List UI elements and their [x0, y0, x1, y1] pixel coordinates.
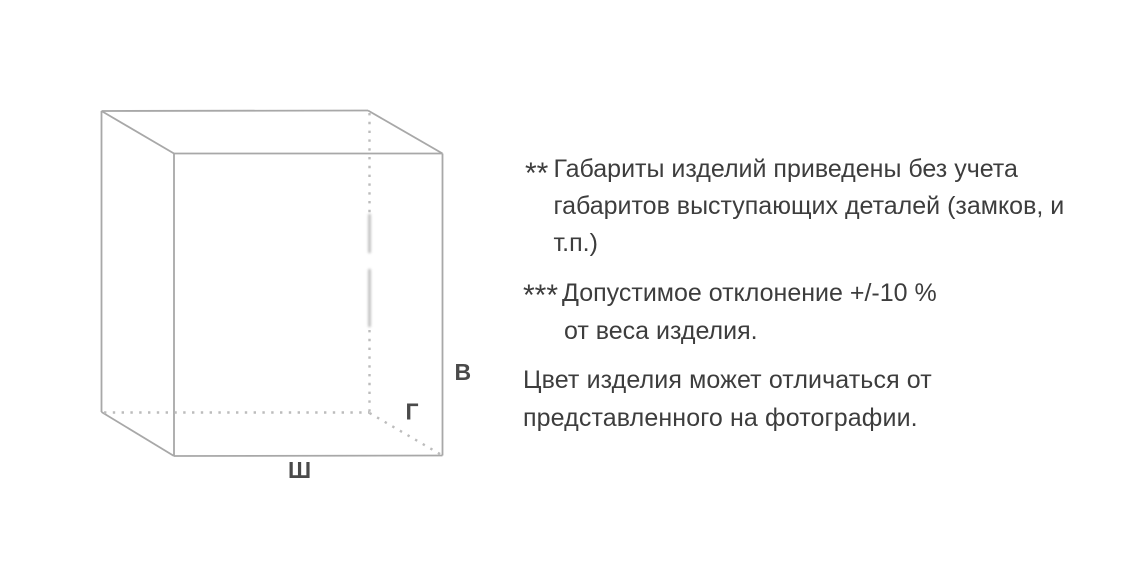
svg-text:В: В [455, 359, 472, 385]
svg-text:Ш: Ш [288, 457, 311, 483]
svg-text:Г: Г [406, 399, 419, 425]
